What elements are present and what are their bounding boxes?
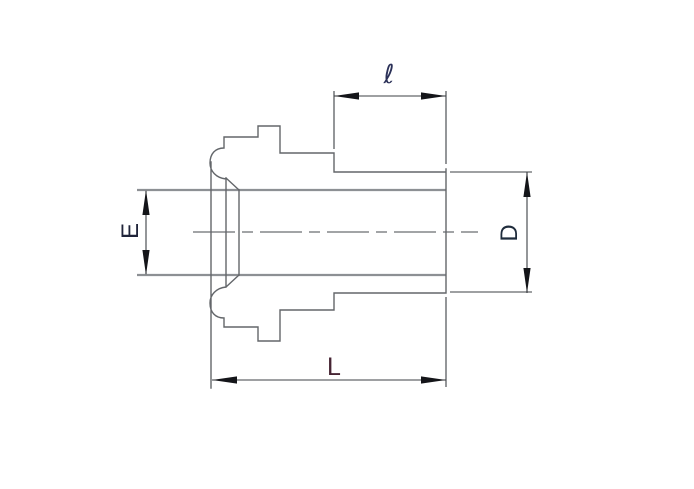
arrow-e-top <box>142 190 149 215</box>
arrow-l-left <box>334 92 359 99</box>
arrow-l-right <box>421 92 446 99</box>
arrow-e-bottom <box>142 250 149 275</box>
dimension-arrowheads <box>142 92 530 383</box>
arrow-L-right <box>421 376 446 383</box>
arrow-L-left <box>212 376 237 383</box>
technical-drawing: ℓ E D L <box>0 0 694 489</box>
fitting-outline <box>210 126 446 388</box>
arrow-d-bottom <box>523 268 530 293</box>
arrow-d-top <box>523 172 530 197</box>
fitting-diagram <box>0 0 694 489</box>
dimension-extension-lines <box>146 91 532 387</box>
